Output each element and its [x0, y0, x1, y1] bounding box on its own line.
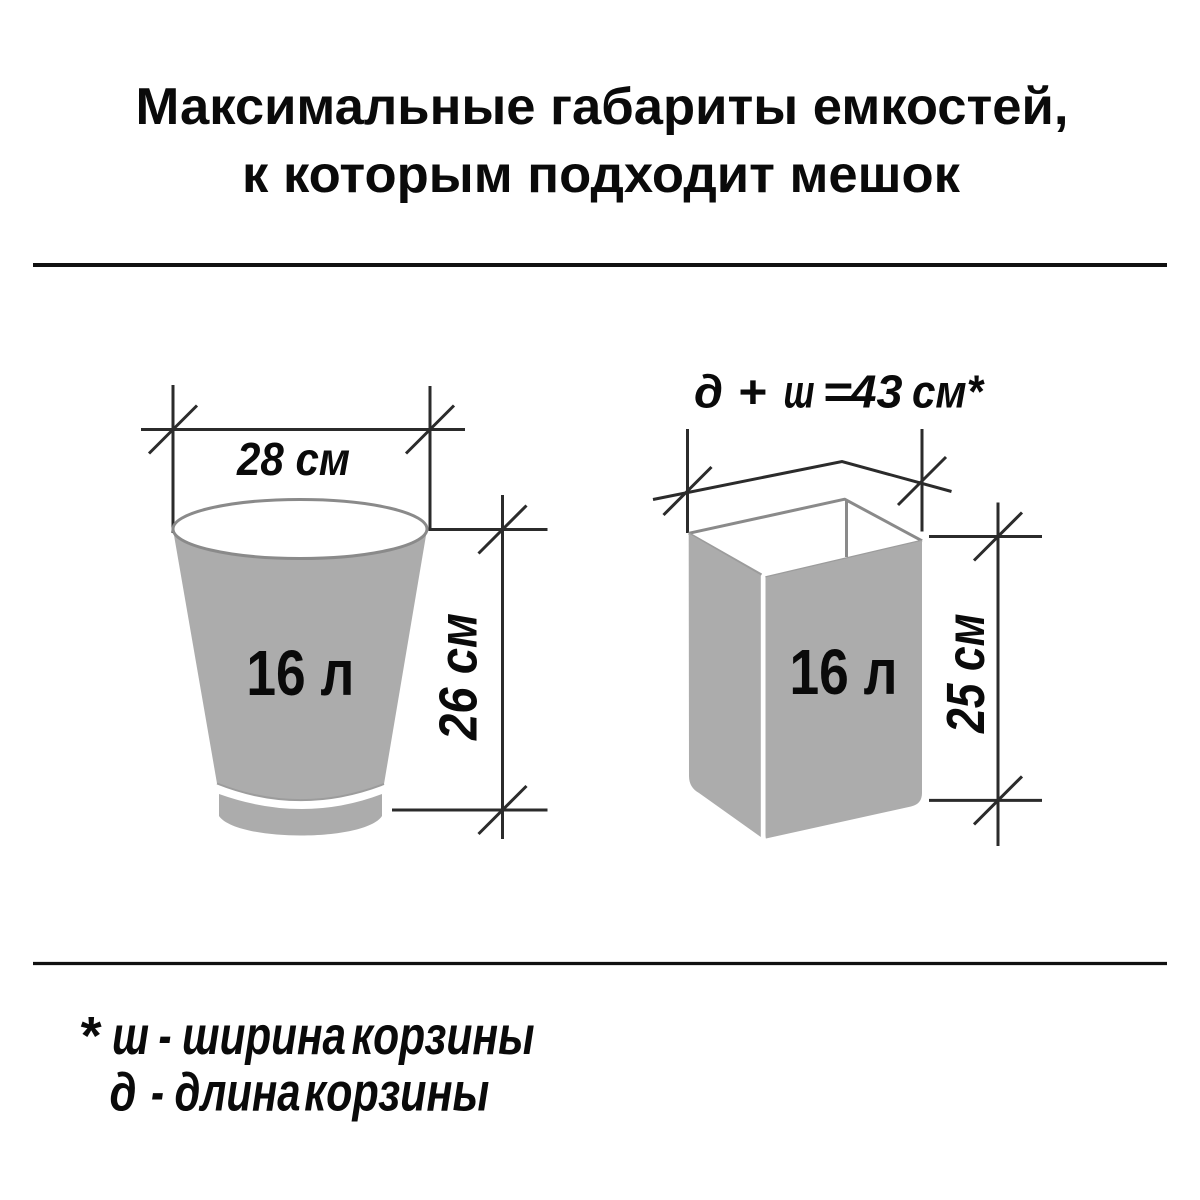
svg-text:*ш-ширинакорзины: *ш-ширинакорзины: [79, 1006, 535, 1066]
svg-text:26 см: 26 см: [429, 613, 489, 741]
svg-text:д+ш=43см*: д+ш=43см*: [694, 366, 985, 418]
svg-text:16 л: 16 л: [790, 636, 898, 708]
svg-text:25 см: 25 см: [936, 613, 996, 733]
svg-text:16 л: 16 л: [246, 637, 354, 709]
svg-text:к которым подходит мешок: к которым подходит мешок: [242, 146, 961, 204]
svg-text:Максимальные габариты емкостей: Максимальные габариты емкостей,: [136, 78, 1069, 136]
svg-text:28 см: 28 см: [236, 433, 350, 485]
